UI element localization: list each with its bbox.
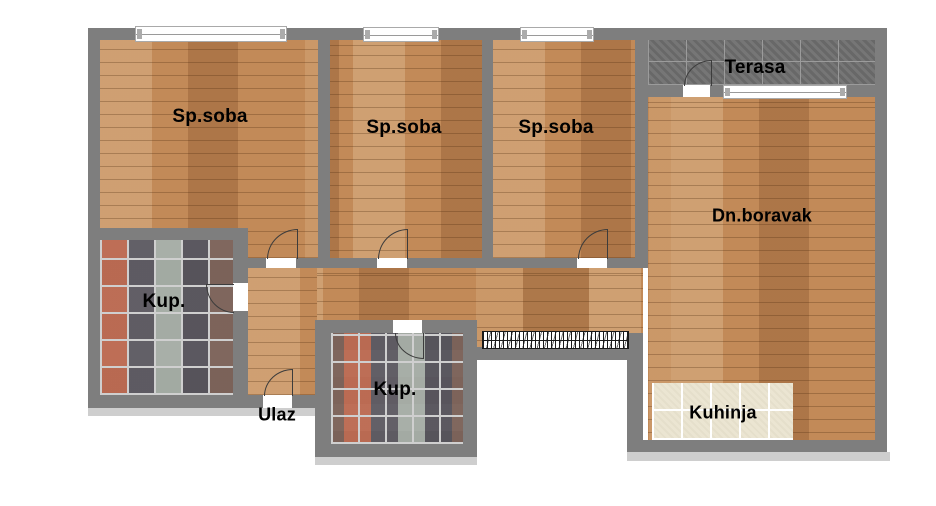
floorplan-canvas: Sp.soba Sp.soba Sp.soba Terasa Dn.borava…	[0, 0, 936, 506]
room-bedroom-1-floor	[100, 40, 318, 258]
room-living-label: Dn.boravak	[712, 206, 812, 227]
room-bathroom-1-label: Kup.	[142, 291, 185, 313]
door-opening-bedroom-3	[577, 258, 607, 268]
radiator-symbol	[482, 331, 629, 349]
window-bedroom-3	[520, 27, 594, 42]
wall-bed1-bed2	[318, 40, 330, 258]
door-opening-bathroom-2	[393, 320, 422, 333]
room-bedroom-2-label: Sp.soba	[366, 117, 441, 139]
window-bedroom-1	[135, 26, 287, 42]
shadow-bathroom-2	[315, 457, 477, 465]
wall-bath2-right	[463, 320, 477, 457]
door-opening-bathroom-1	[233, 283, 248, 311]
room-bedroom-2-floor	[330, 40, 482, 258]
wall-bed1-bath1	[88, 228, 248, 240]
room-bathroom-1-floor	[100, 240, 233, 395]
window-bedroom-2	[363, 27, 439, 42]
door-opening-bedroom-2	[377, 258, 407, 268]
room-bedroom-1-label: Sp.soba	[172, 106, 247, 128]
shadow-living	[627, 452, 890, 461]
window-terrace	[723, 85, 847, 99]
kitchen-label: Kuhinja	[689, 403, 756, 424]
room-bathroom-2-label: Kup.	[373, 379, 416, 401]
entrance-label: Ulaz	[258, 405, 296, 426]
room-bedroom-3-floor	[493, 40, 635, 258]
wall-bath1-right	[233, 228, 248, 395]
wall-right	[875, 28, 887, 452]
door-opening-bedroom-1	[266, 258, 296, 268]
room-bedroom-3-label: Sp.soba	[518, 117, 593, 139]
wall-left	[88, 28, 100, 408]
wall-bed3-living	[635, 40, 648, 268]
wall-bath2-left	[315, 320, 331, 457]
wall-bed2-bed3	[482, 40, 493, 258]
wall-bath2-bottom	[315, 444, 477, 457]
room-terrace-label: Terasa	[724, 57, 785, 79]
wall-living-bottom	[627, 440, 887, 452]
door-opening-terrace	[683, 85, 710, 97]
wall-living-left-lower	[627, 333, 643, 440]
